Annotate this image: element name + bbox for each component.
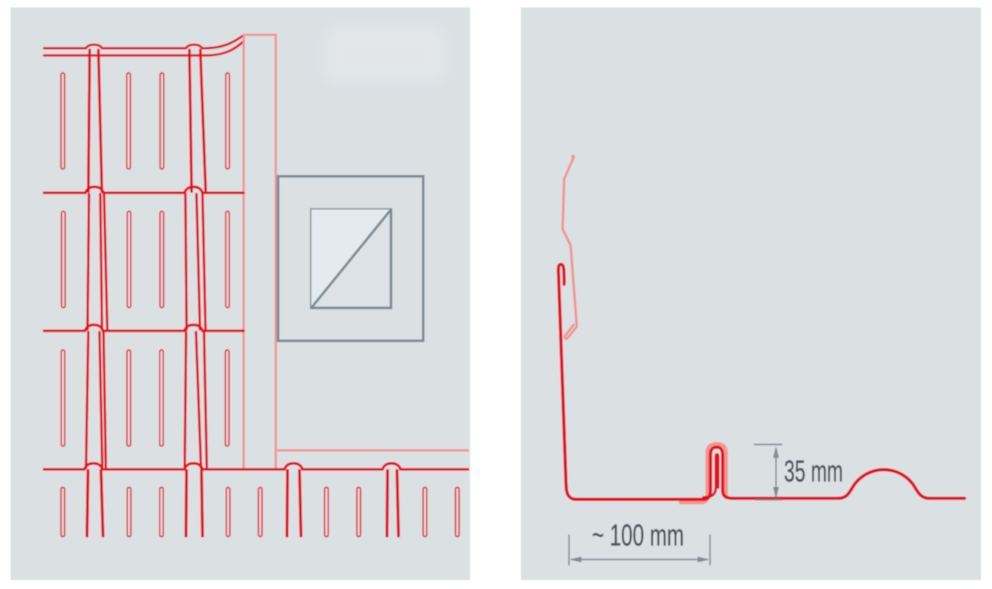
svg-text:~ 100 mm: ~ 100 mm [592,518,684,553]
svg-text:35 mm: 35 mm [784,454,843,489]
